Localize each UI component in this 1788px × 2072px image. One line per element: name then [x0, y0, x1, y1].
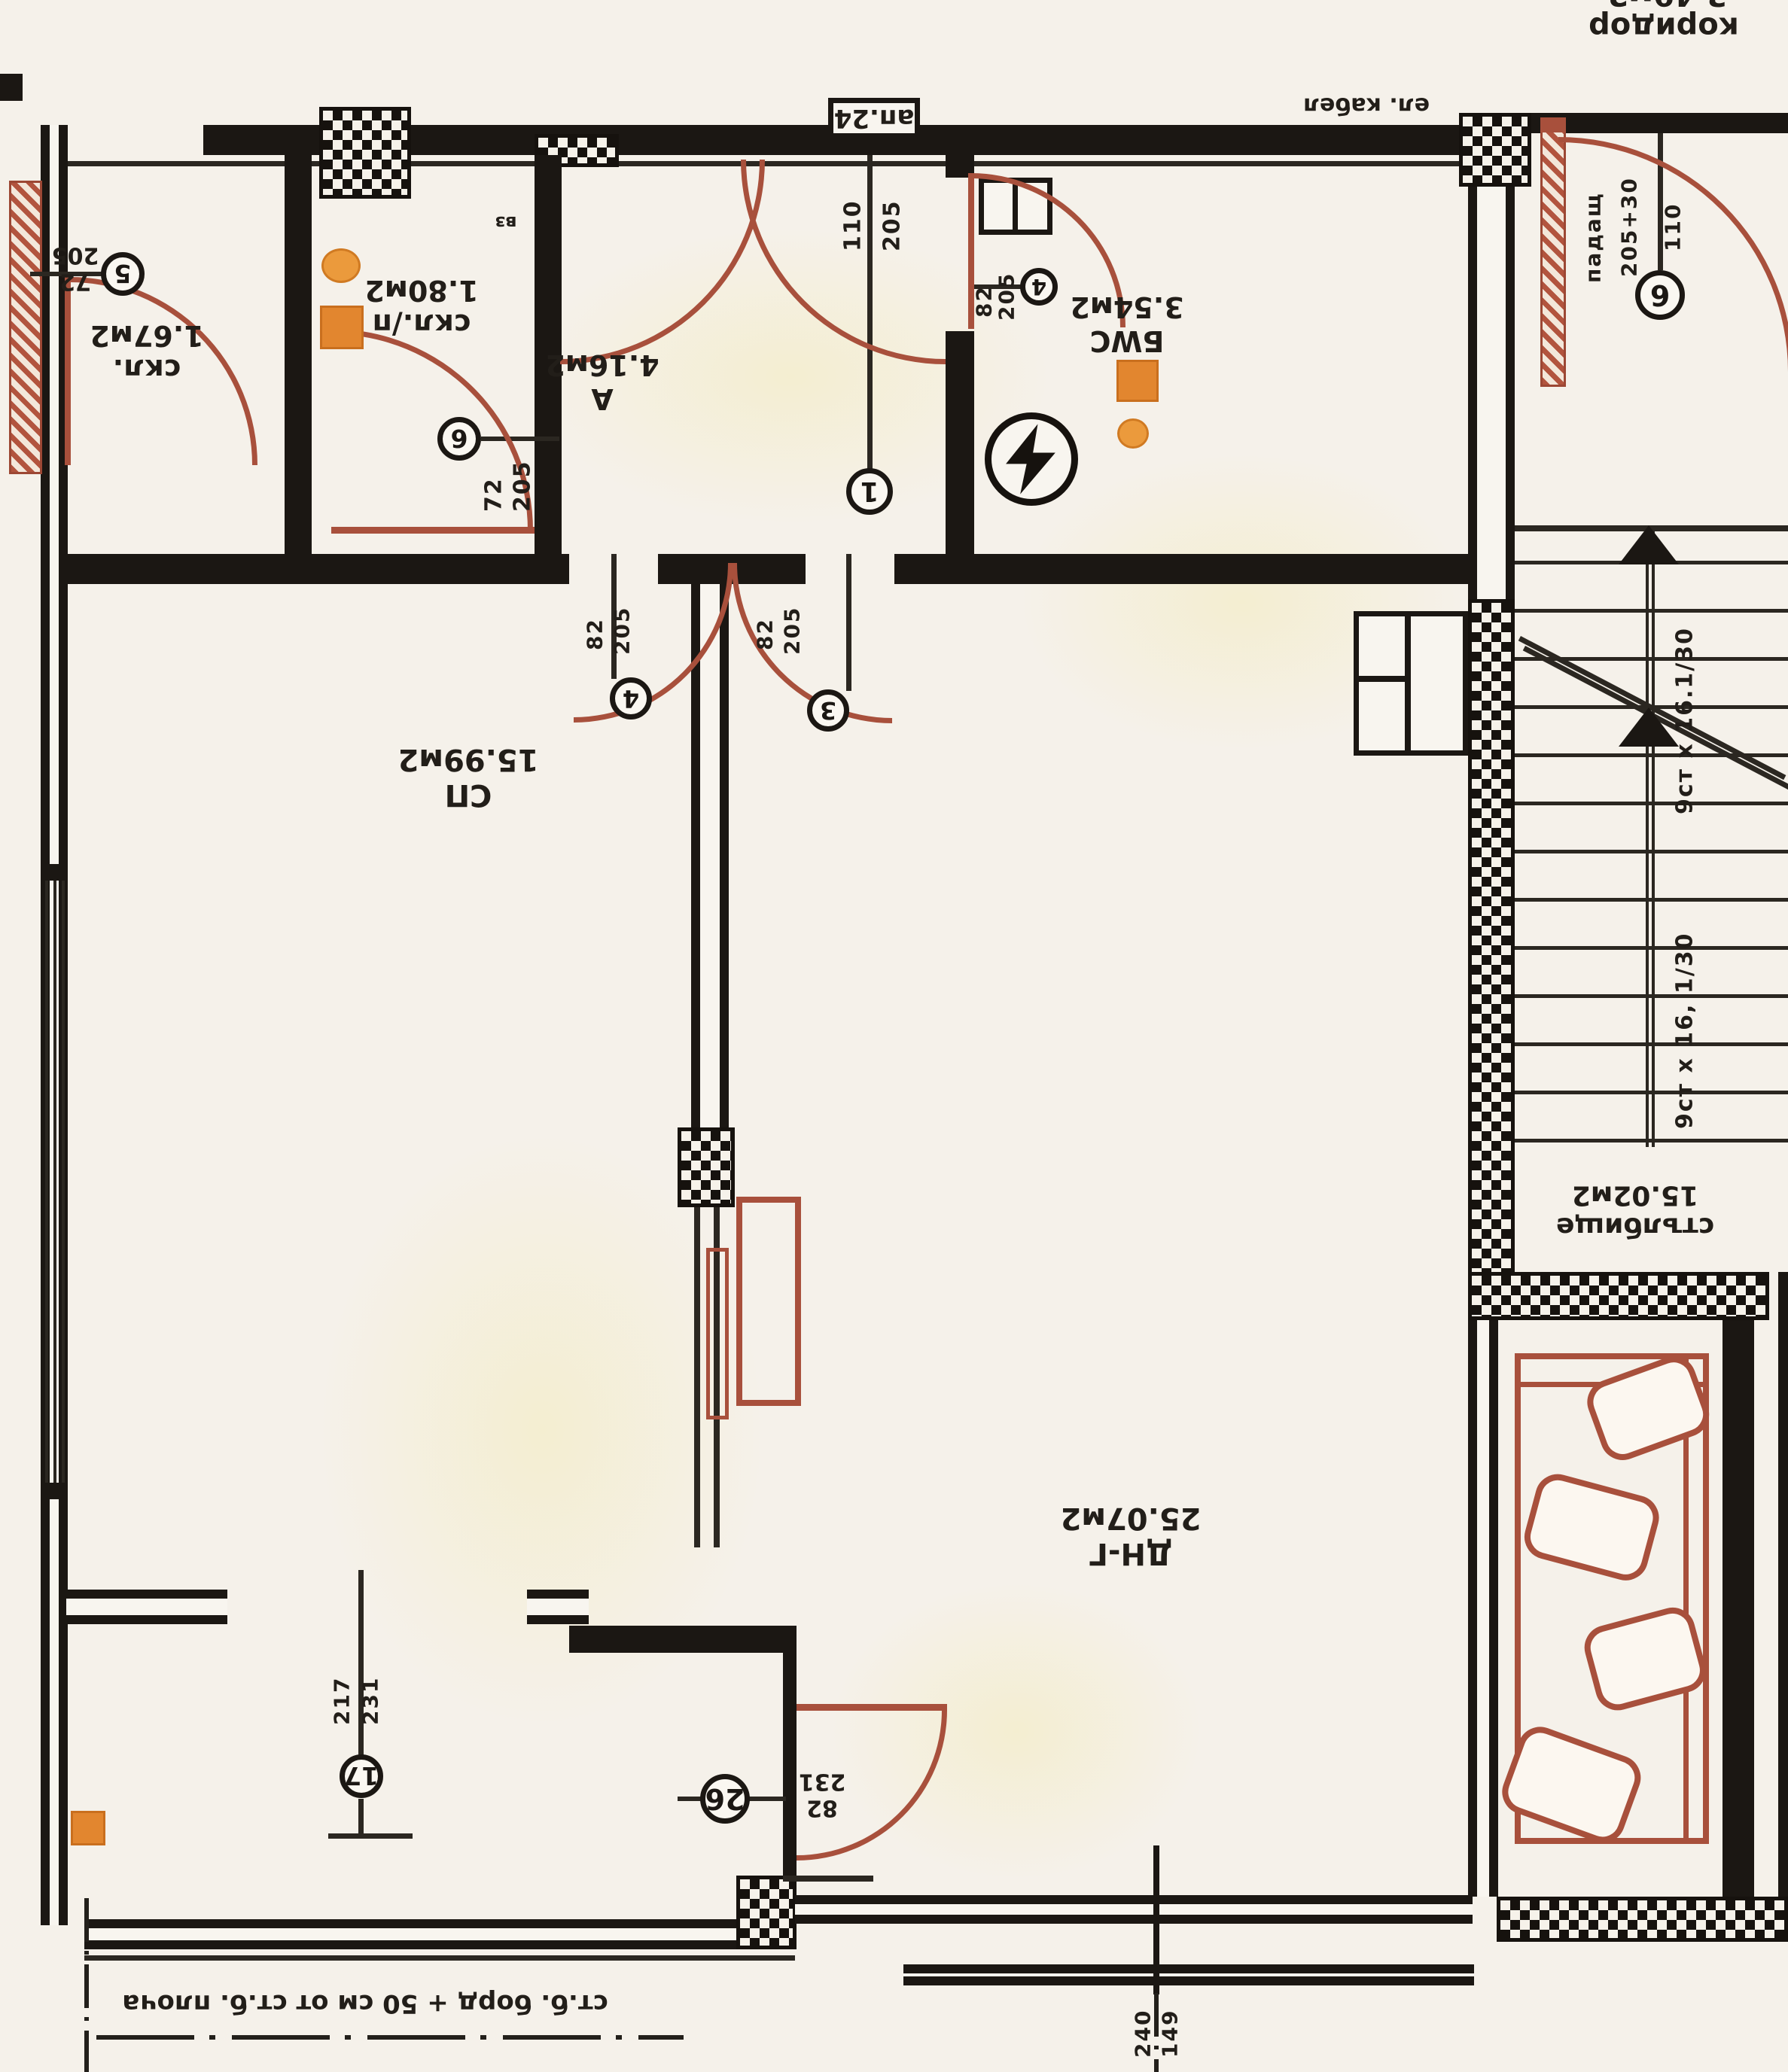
- dim-door17-a: 217: [330, 1662, 355, 1725]
- dim-window-a: 240: [1131, 1994, 1156, 2058]
- wall-balcony-bottom-hatch: [1497, 1897, 1788, 1942]
- dim-door6corr-b: 110: [1661, 179, 1686, 251]
- label-stb-bord: ст.б. борд + 50 см от ст.б. плоча: [122, 1988, 608, 2019]
- door-badge-17: 17: [340, 1754, 383, 1798]
- label-el-kabel: ел. кабел: [1303, 92, 1430, 118]
- wall-pillar-hatch: [736, 1876, 797, 1949]
- window-sp-line1: [45, 881, 48, 1483]
- wall-vent-top: [319, 107, 411, 199]
- dim-door4sp-a: 82: [583, 593, 608, 650]
- wall-center-divider: [691, 584, 729, 1129]
- stair-treads-tread-13: [1515, 1139, 1788, 1142]
- shaft-box: [1354, 611, 1468, 756]
- door-badge-4-sp: 4: [610, 677, 652, 720]
- door-badge-3: 3: [807, 689, 849, 732]
- wall-right-edge: [1778, 1272, 1788, 1930]
- stair-treads-tread-12: [1515, 1091, 1788, 1094]
- wall-corr-red-cap: [1540, 117, 1566, 132]
- stair-treads-tread-5: [1515, 753, 1788, 757]
- dim-door26: 82 231: [799, 1768, 846, 1821]
- fixture-terrace-square: [71, 1811, 105, 1845]
- wall-dng-right: [1468, 1320, 1498, 1897]
- dim-door4bwc-b: 205: [995, 256, 1019, 321]
- closet-red-rect-inner: [706, 1248, 729, 1419]
- fixture-bwc-circle: [1117, 418, 1149, 449]
- room-label-bwc: БWC 3.54м2: [1070, 290, 1183, 358]
- wall-window-mullion: [1153, 1845, 1159, 1994]
- fixture-bwc-square: [1116, 360, 1159, 402]
- axis-line-mullion: [1154, 1993, 1159, 2072]
- shaft-divider-v: [1405, 611, 1411, 756]
- stair-treads-tread-7: [1515, 850, 1788, 853]
- dim-door6corr-a: 205+30: [1617, 172, 1642, 277]
- wall-window-band2: [903, 1964, 1474, 1985]
- dim-door6skl-a: 72: [481, 449, 507, 512]
- wall-t26-horiz: [569, 1626, 797, 1653]
- fixture-sklp-circle: [321, 248, 361, 283]
- window-sp-line2: [53, 881, 56, 1483]
- door26-leaf: [797, 1704, 947, 1711]
- stair-treads-tread-11: [1515, 1042, 1788, 1046]
- axis-line-bottom: [96, 2035, 684, 2040]
- label-padash: падащ: [1581, 140, 1606, 283]
- dim-door4sp-b: 205: [610, 589, 635, 655]
- wall-terrace-parapet: [84, 1919, 795, 1949]
- dim-door6skl-b: 205: [510, 449, 536, 512]
- stair-treads-tread-8: [1515, 898, 1788, 902]
- room-label-dng: ДН-Г 25.07м2: [1060, 1500, 1201, 1571]
- stair-flight-a: 9ст x 16.1/30: [1672, 566, 1698, 814]
- door5-leaf: [65, 275, 71, 465]
- room-label-a: А 4.16м2: [545, 348, 659, 415]
- window-sp-line3: [62, 881, 65, 1483]
- wall-balcony-right: [1723, 1320, 1754, 1930]
- stair-flight-b: 9ст x 16, 1/30: [1672, 881, 1698, 1129]
- wall-center-thin-a: [694, 1207, 700, 1547]
- dim-window-b: 149: [1158, 1994, 1183, 2058]
- wall-skl-divider: [285, 155, 312, 578]
- stair-treads-tread-6: [1515, 802, 1788, 805]
- electrical-meter-symbol: [985, 412, 1078, 506]
- label-koridor-area: 3.49м2: [1607, 0, 1727, 12]
- floor-plan-scan: 56144317266скл. 1.67м2скл./п 1.80м2А 4.1…: [0, 0, 1788, 2072]
- room-label-sp: СП 15.99м2: [398, 741, 538, 812]
- shaft-divider-h: [1354, 676, 1411, 682]
- door-badge-6-corr: 6: [1635, 270, 1685, 320]
- door-badge-5: 5: [101, 252, 145, 296]
- wall-mid-left: [66, 554, 569, 584]
- axis-line-left: [84, 1898, 89, 2072]
- door-badge-1: 1: [846, 468, 893, 515]
- door-badge-4-bwc: 4: [1020, 268, 1058, 306]
- door17-tick: [328, 1833, 413, 1839]
- room-label-stairs: стълбище 15.02м2: [1556, 1179, 1714, 1243]
- dim-door3-b: 205: [780, 589, 805, 655]
- stair-treads-tread-3: [1515, 657, 1788, 661]
- label-vz: вз: [495, 212, 516, 233]
- wall-stair-bottom-hatch: [1468, 1272, 1769, 1320]
- window-sp-cap-bottom: [42, 1483, 68, 1499]
- wall-a-bwc-lower: [946, 331, 974, 580]
- dim-door1-b: 205: [879, 179, 906, 251]
- stair-stringer-a: [1646, 527, 1649, 1147]
- scan-mark-corner: [0, 74, 23, 101]
- wall-corr-top-hatch: [1459, 113, 1531, 187]
- door6skl-leaf: [331, 527, 535, 534]
- room-label-sklp: скл./п 1.80м2: [364, 273, 478, 341]
- wall-mid-right: [894, 554, 1477, 584]
- stair-treads-tread-2: [1515, 609, 1788, 613]
- door17-leader2: [358, 1799, 364, 1833]
- wall-sp-bottom-right: [527, 1590, 589, 1624]
- door-badge-6-skl: 6: [437, 417, 481, 461]
- label-ap24: ап.24: [834, 103, 915, 133]
- stair-arrow-up: [1619, 525, 1679, 564]
- wall-window-band: [795, 1895, 1473, 1924]
- wall-t26-vert: [783, 1653, 797, 1876]
- wall-sp-bottom-left: [66, 1590, 227, 1624]
- wall-window-connector: [783, 1876, 873, 1882]
- dim-door17-b: 231: [358, 1662, 383, 1725]
- dim-door4bwc-a: 82: [972, 260, 997, 318]
- wall-terrace-parapet-thin: [84, 1955, 795, 1961]
- dim-door5: 72 205: [52, 242, 99, 295]
- door-badge-26: 26: [700, 1774, 750, 1824]
- stair-treads-tread-10: [1515, 994, 1788, 998]
- fixture-sklp-square: [320, 306, 364, 349]
- closet-red-rect: [736, 1197, 801, 1406]
- wall-left-red: [9, 181, 42, 474]
- dim-door1-a: 110: [840, 179, 867, 251]
- wall-stair-left-hatch: [1468, 599, 1515, 1276]
- stair-treads-tread-9: [1515, 946, 1788, 950]
- wall-center-hatch: [678, 1127, 735, 1207]
- stair-arrow-mid: [1619, 707, 1679, 747]
- label-koridor: коридор: [1588, 9, 1739, 44]
- lightning-icon: [991, 419, 1071, 499]
- wall-bwc-stair: [1468, 154, 1515, 599]
- stair-stringer-b: [1652, 527, 1655, 1147]
- room-label-skl: скл. 1.67м2: [90, 318, 203, 386]
- window-sp-cap-top: [42, 864, 68, 881]
- dim-door3-a: 82: [753, 593, 778, 650]
